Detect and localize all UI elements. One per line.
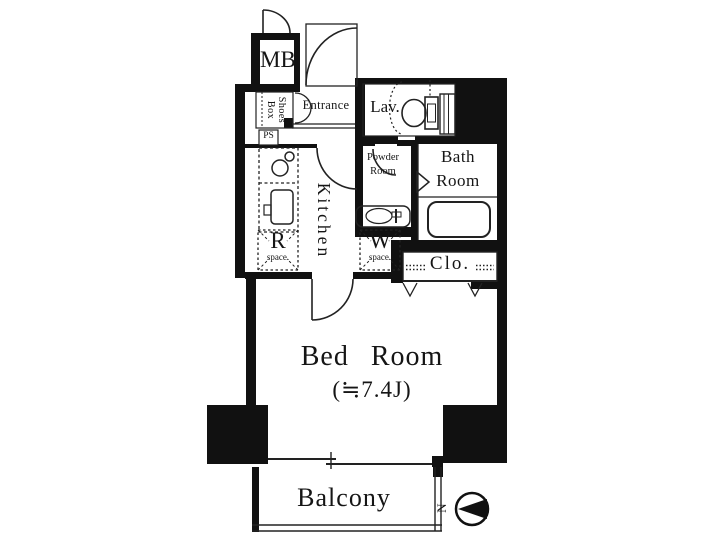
powder-room-label: Powder Room bbox=[356, 151, 410, 178]
shoes-box-label: Shoes Box bbox=[261, 88, 287, 132]
mb-door-swing bbox=[263, 10, 290, 33]
floor-plan: MB Shoes Box PS Entrance Lav. Bath Room … bbox=[0, 0, 720, 540]
kitchen-label: Kitchen bbox=[309, 141, 333, 301]
shoes-box-label-line1: Shoes bbox=[276, 88, 287, 132]
bath-room-label: Bath Room bbox=[419, 145, 497, 193]
toilet-tank bbox=[425, 97, 438, 129]
washer-space-label: W bbox=[360, 228, 400, 253]
kitchen-sink bbox=[271, 190, 293, 224]
compass-north-label: N bbox=[435, 500, 449, 516]
bedroom-size-label: (≒7.4J) bbox=[272, 377, 472, 402]
balcony-bottom-edge bbox=[252, 525, 442, 531]
powder-room-label-line1: Powder bbox=[356, 151, 410, 165]
entrance-door-swing bbox=[306, 28, 357, 85]
lav-top-wall bbox=[365, 78, 457, 84]
closet-label-text: Clo. bbox=[426, 253, 474, 274]
bath-room-label-line2: Room bbox=[419, 169, 497, 193]
closet-door-marks bbox=[403, 283, 482, 296]
lav-cabinet-lines bbox=[444, 94, 449, 134]
lav-label: Lav. bbox=[363, 98, 407, 117]
pillar-block-bottom-left bbox=[207, 405, 268, 464]
refrigerator-space-sublabel: space. bbox=[256, 253, 300, 263]
refrigerator-space-label: R bbox=[258, 228, 298, 253]
powder-basin bbox=[366, 209, 392, 224]
closet-label: Clo. bbox=[408, 254, 492, 275]
bedroom-top-wall-right bbox=[353, 272, 397, 279]
floorplan-graphics bbox=[0, 0, 720, 540]
compass bbox=[456, 493, 488, 525]
powder-room-label-line2: Room bbox=[356, 165, 410, 179]
toilet-tank-inner bbox=[428, 104, 436, 122]
pillar-block-bottom-right bbox=[443, 405, 507, 463]
shoes-box-label-line2: Box bbox=[265, 88, 276, 132]
lav-cabinet bbox=[440, 94, 455, 134]
top-right-block bbox=[455, 78, 507, 144]
kitchen-faucet bbox=[264, 205, 271, 215]
entrance-label: Entrance bbox=[294, 99, 358, 113]
stove-burner-large bbox=[272, 160, 288, 176]
balcony-label: Balcony bbox=[264, 484, 424, 513]
bath-bottom-wall bbox=[403, 240, 507, 252]
bedroom-left-wall bbox=[246, 279, 256, 405]
stove-burner-small bbox=[285, 152, 294, 161]
sliding-window bbox=[268, 459, 432, 464]
ps-label: PS bbox=[259, 131, 278, 141]
washer-space-sublabel: space. bbox=[358, 253, 402, 263]
mb-label: MB bbox=[260, 47, 294, 72]
left-wall bbox=[235, 84, 245, 278]
entrance-step bbox=[292, 124, 355, 128]
balcony-left-wall bbox=[252, 467, 259, 532]
bedroom-top-wall-left bbox=[245, 272, 312, 279]
bathtub bbox=[428, 202, 490, 237]
bedroom-label: Bed Room bbox=[272, 342, 472, 373]
bath-room-label-line1: Bath bbox=[419, 145, 497, 169]
